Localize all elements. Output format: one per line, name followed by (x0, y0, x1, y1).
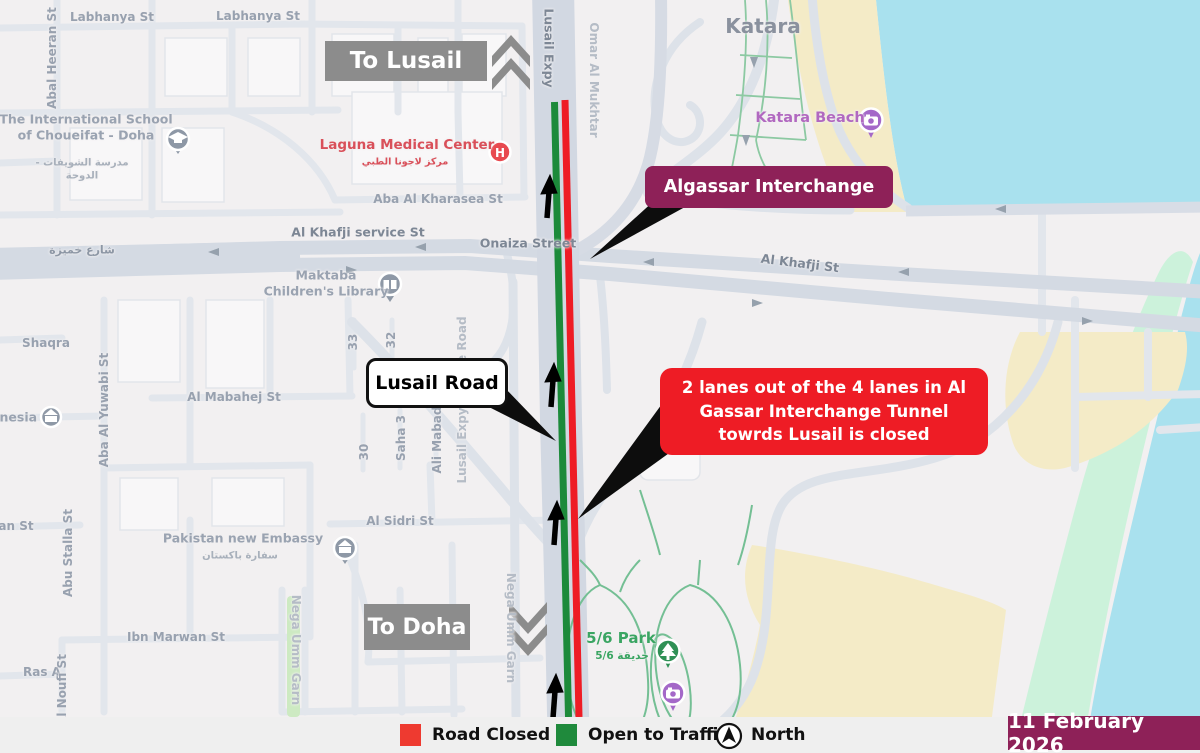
hospital-pin-icon: H (490, 142, 511, 163)
date-badge: 11 February 2026 (1008, 716, 1200, 750)
closure-notice-callout: 2 lanes out of the 4 lanes in Al Gassar … (660, 368, 988, 455)
north-compass-icon (715, 722, 743, 750)
green-median-strip (287, 596, 300, 717)
to-lusail-sign: To Lusail (325, 41, 487, 81)
road-closed-swatch (400, 724, 421, 746)
north-label: North (751, 725, 806, 745)
embassy-pin-icon-indonesia (41, 407, 61, 427)
to-doha-sign: To Doha (364, 604, 470, 650)
map-base: H (0, 0, 1200, 753)
open-to-traffic-label: Open to Traffic (588, 725, 729, 745)
road-closed-label: Road Closed (432, 725, 550, 745)
svg-text:H: H (495, 146, 505, 160)
lusail-road-callout: Lusail Road (366, 358, 508, 408)
open-to-traffic-swatch (556, 724, 577, 746)
map-canvas: H (0, 0, 1200, 753)
algassar-interchange-callout: Algassar Interchange (645, 166, 893, 208)
